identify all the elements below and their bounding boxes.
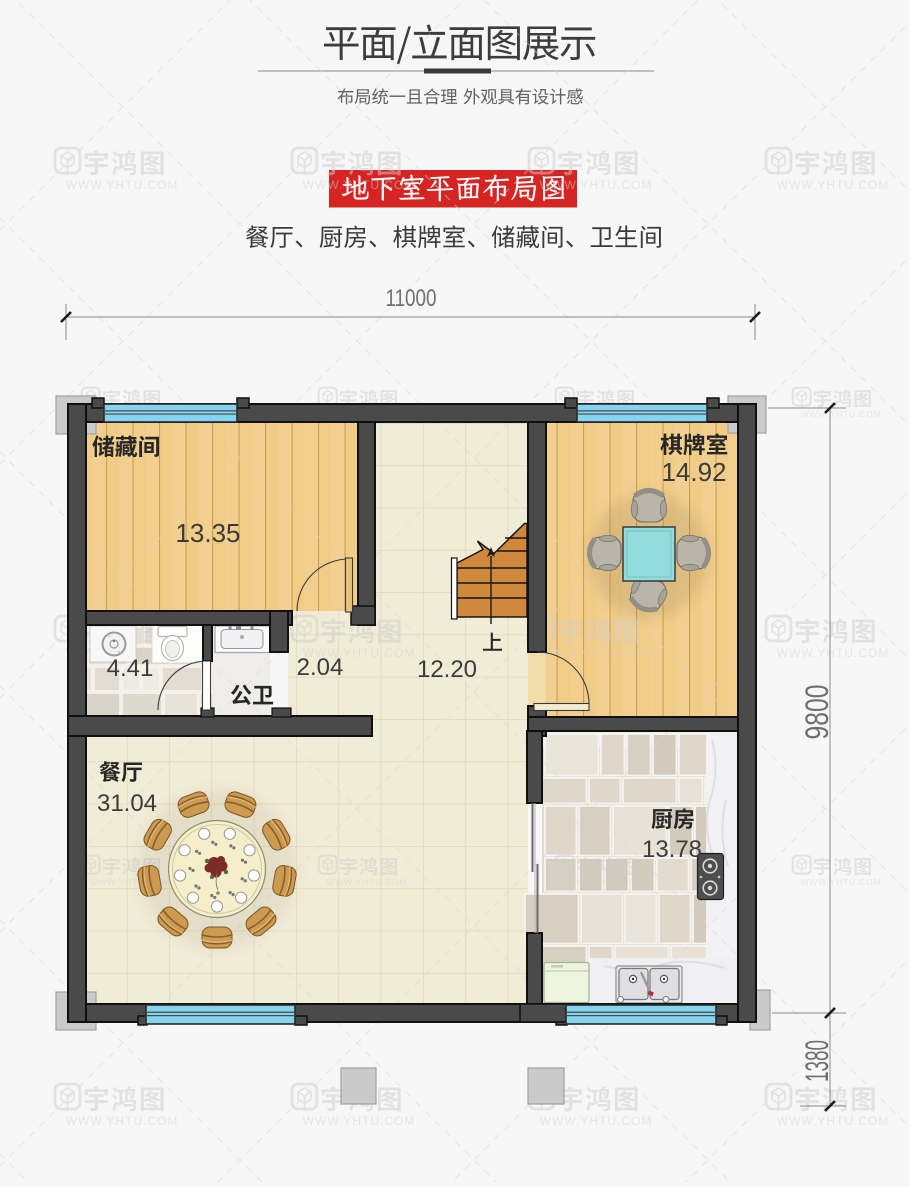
svg-text:1380: 1380 — [799, 1040, 835, 1082]
svg-text:13.78: 13.78 — [642, 836, 702, 863]
svg-text:2.04: 2.04 — [297, 654, 344, 681]
svg-text:4.41: 4.41 — [107, 655, 154, 682]
svg-text:14.92: 14.92 — [661, 457, 726, 487]
svg-text:12.20: 12.20 — [417, 656, 477, 683]
svg-text:31.04: 31.04 — [97, 790, 157, 817]
svg-text:11000: 11000 — [386, 285, 437, 312]
svg-text:13.35: 13.35 — [175, 518, 240, 548]
svg-text:9800: 9800 — [799, 685, 835, 740]
